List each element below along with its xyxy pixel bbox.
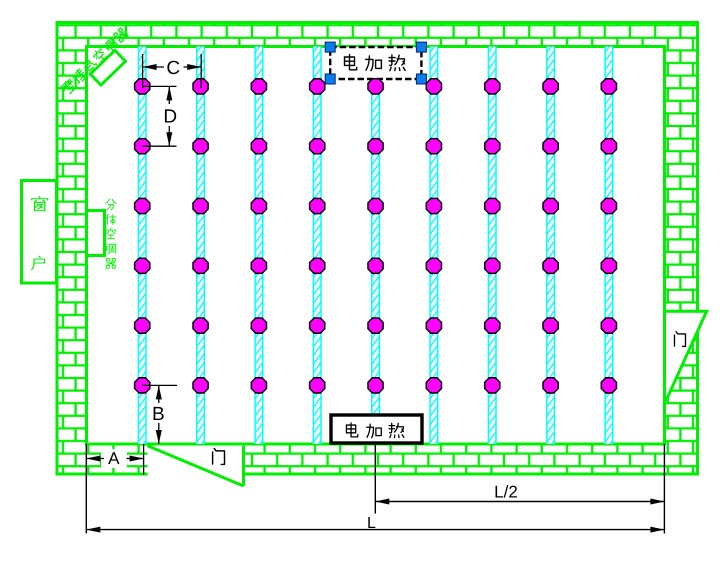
svg-text:C: C: [166, 58, 180, 79]
svg-text:D: D: [163, 106, 177, 127]
svg-text:A: A: [108, 449, 120, 468]
svg-text:B: B: [152, 404, 165, 425]
svg-text:L/2: L/2: [494, 483, 518, 502]
svg-text:L: L: [367, 515, 376, 532]
